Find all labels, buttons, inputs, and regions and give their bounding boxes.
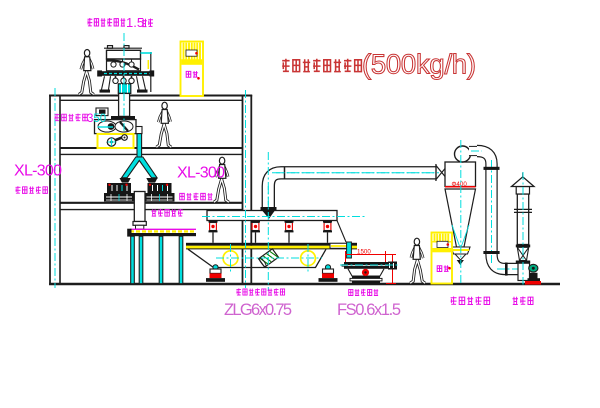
svg-text:ZLG6x0.75: ZLG6x0.75	[224, 301, 292, 319]
svg-text:1500: 1500	[357, 249, 371, 256]
svg-text:Φ400: Φ400	[452, 181, 468, 188]
svg-text:FS0.6x1.5: FS0.6x1.5	[337, 301, 401, 319]
svg-text:350: 350	[87, 113, 106, 125]
svg-text:(500kg/h): (500kg/h)	[362, 49, 476, 80]
svg-text:1.5: 1.5	[126, 15, 144, 30]
svg-text:XL-300: XL-300	[177, 165, 225, 182]
svg-text:XL-300: XL-300	[14, 163, 62, 180]
